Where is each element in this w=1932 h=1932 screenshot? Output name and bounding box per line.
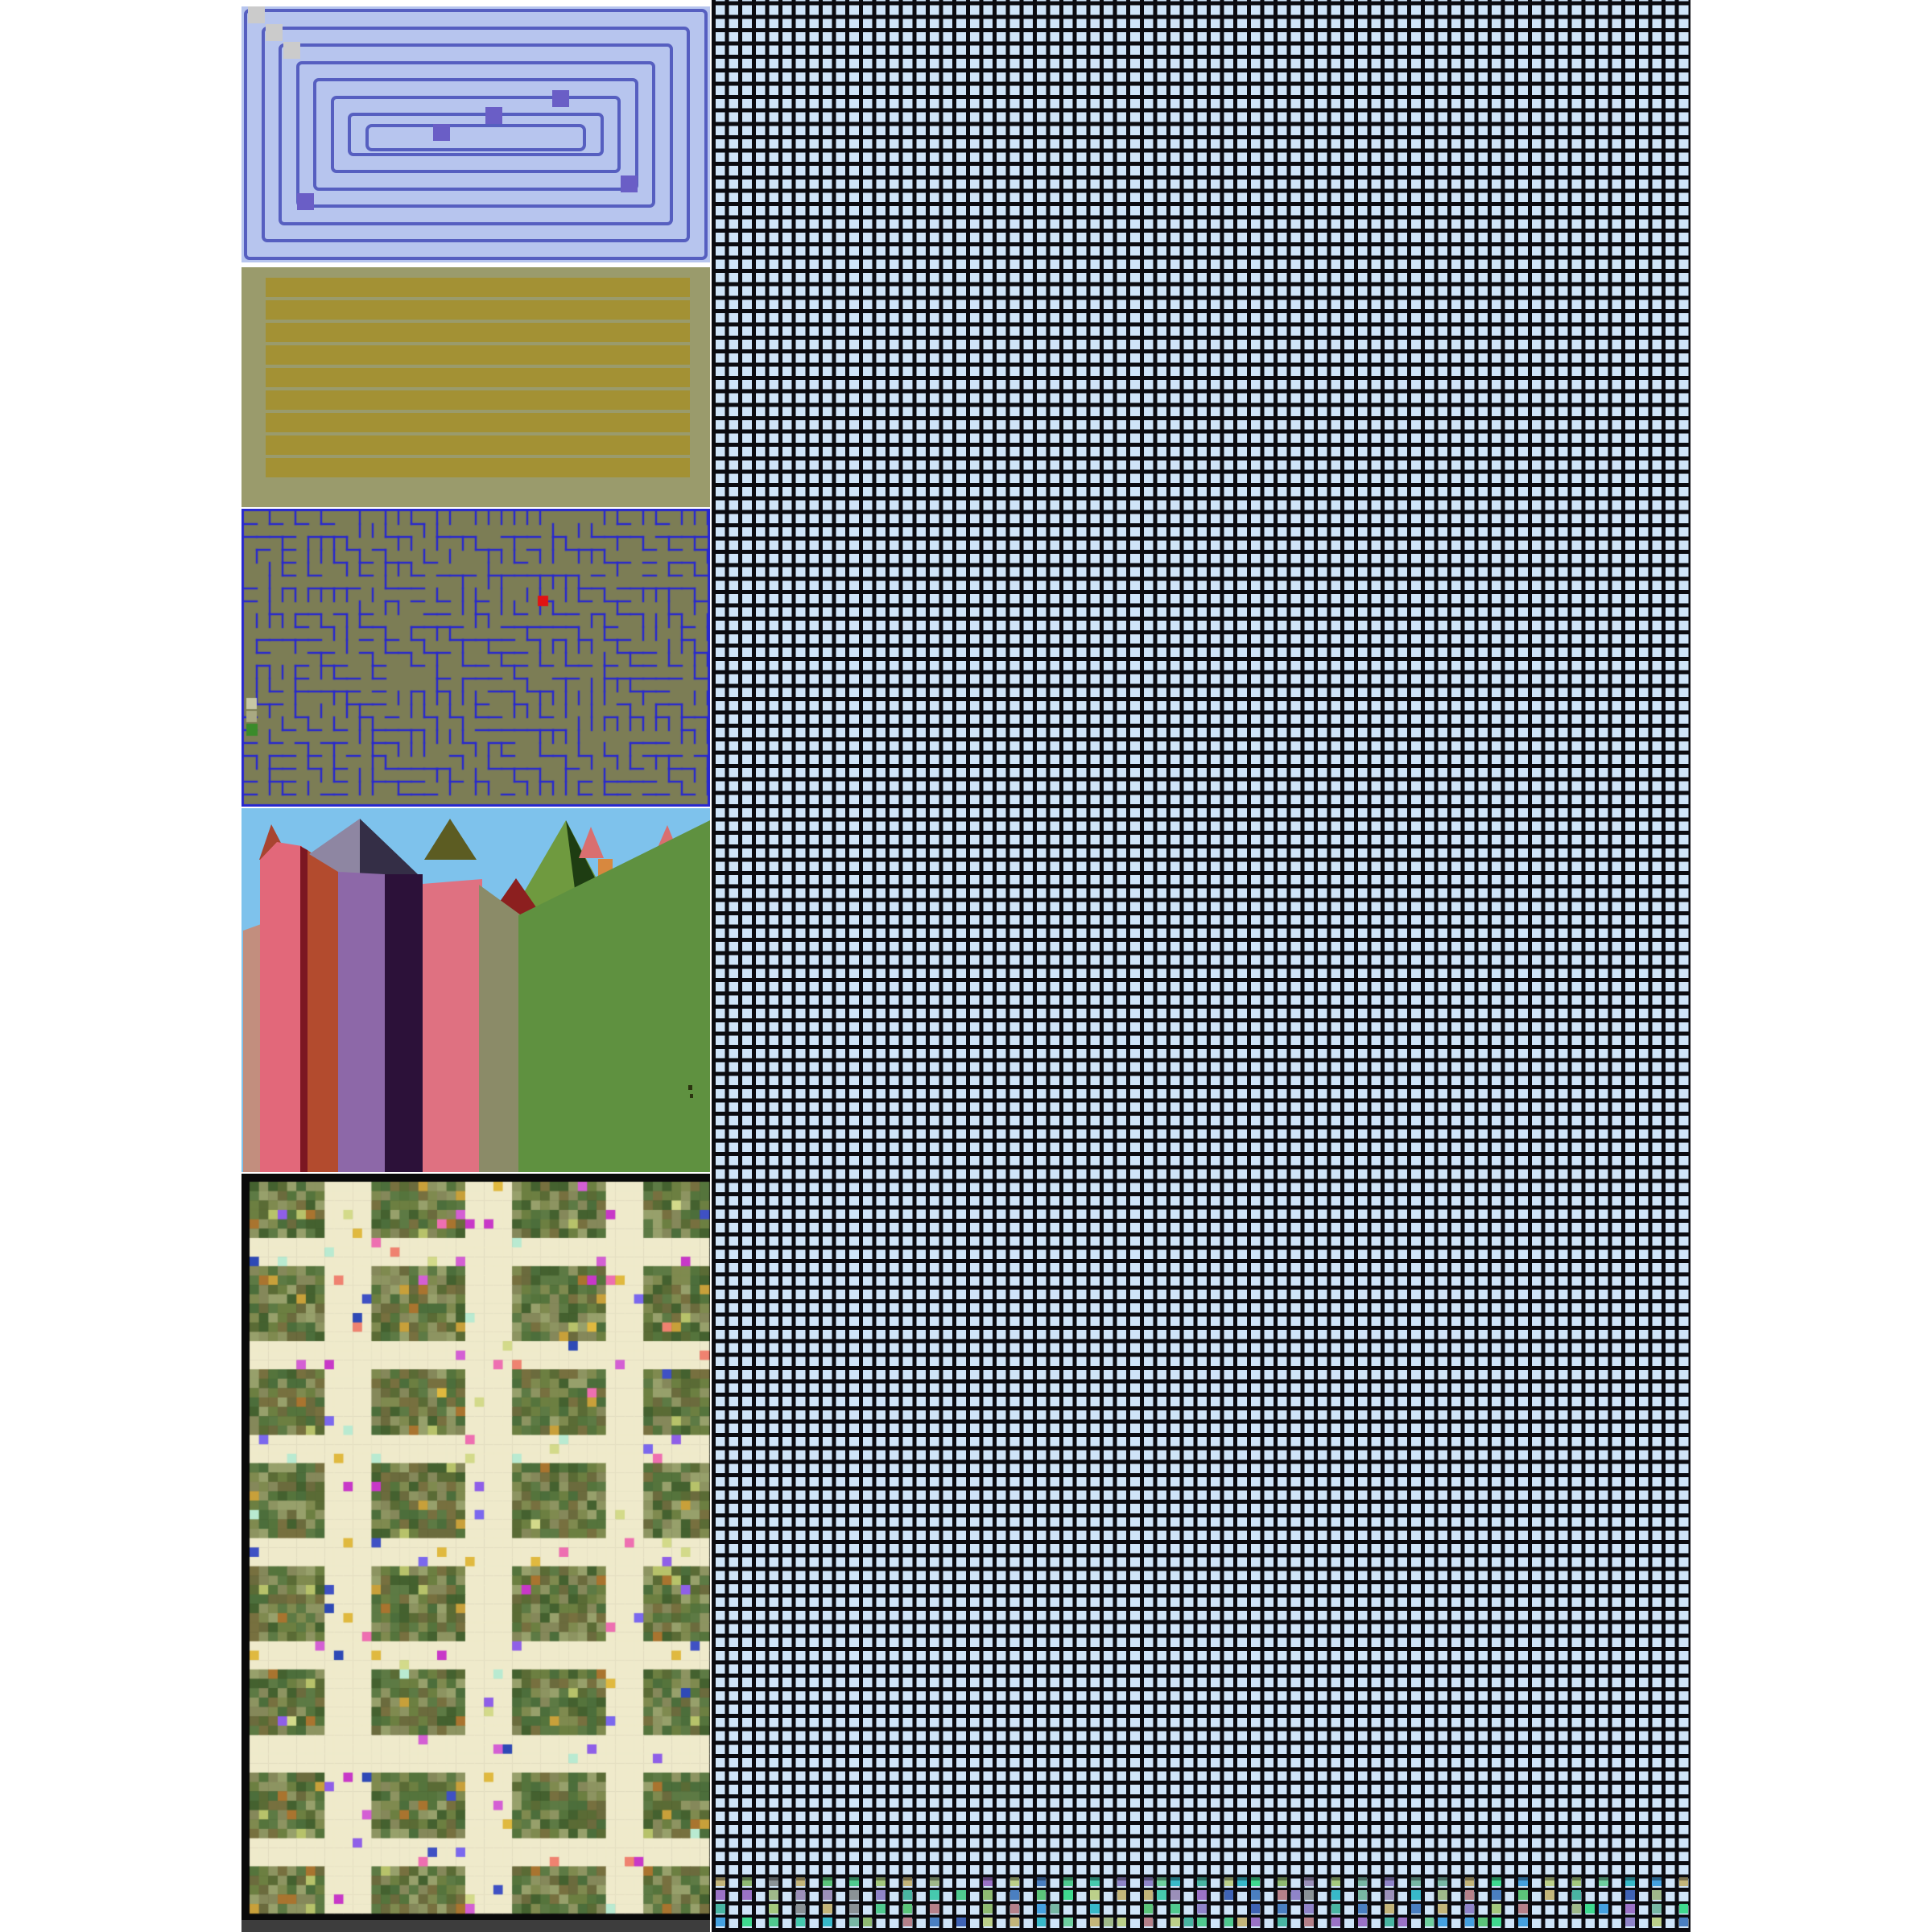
terrain-facet — [690, 1094, 693, 1098]
grid-colored-cell — [903, 1890, 913, 1900]
grid-colored-cell — [930, 1890, 939, 1900]
grid-colored-cell — [1625, 1904, 1635, 1913]
grid-colored-cell — [716, 1918, 725, 1927]
grid-colored-cell — [1465, 1890, 1475, 1900]
grid-colored-cell — [1251, 1877, 1261, 1887]
grid-colored-cell — [1385, 1890, 1394, 1900]
grid-colored-cell — [849, 1904, 859, 1913]
grid-colored-cell — [1184, 1918, 1194, 1927]
grid-colored-cell — [1385, 1877, 1394, 1887]
city-footer-bar — [242, 1920, 710, 1932]
terrain-facet — [308, 850, 340, 1172]
terrain-facet — [479, 885, 520, 1172]
grid-colored-cell — [930, 1877, 939, 1887]
city-map-panel — [242, 1174, 710, 1920]
grid-colored-cell — [1144, 1890, 1154, 1900]
grid-colored-cell — [1438, 1890, 1447, 1900]
spiral-gray-marker — [266, 24, 283, 41]
grid-colored-cell — [742, 1877, 752, 1887]
grid-colored-cell — [1358, 1904, 1368, 1913]
grid-colored-cell — [1237, 1877, 1247, 1887]
grid-colored-cell — [1438, 1877, 1447, 1887]
grid-colored-cell — [1144, 1904, 1154, 1913]
grid-colored-cell — [1652, 1877, 1662, 1887]
grid-colored-cell — [1251, 1904, 1261, 1913]
grid-colored-cell — [1278, 1918, 1287, 1927]
grid-colored-cell — [1090, 1918, 1100, 1927]
grid-colored-cell — [1278, 1904, 1287, 1913]
grid-colored-cell — [1411, 1904, 1421, 1913]
grid-colored-cell — [1385, 1918, 1394, 1927]
grid-colored-cell — [796, 1904, 806, 1913]
grid-colored-cell — [1331, 1904, 1341, 1913]
grid-colored-cell — [1411, 1877, 1421, 1887]
grid-colored-cell — [1438, 1904, 1447, 1913]
grid-colored-cell — [1304, 1877, 1314, 1887]
grid-colored-cell — [849, 1918, 859, 1927]
grid-colored-cell — [1599, 1877, 1608, 1887]
grid-colored-cell — [1224, 1890, 1234, 1900]
grid-colored-cell — [1197, 1877, 1207, 1887]
grid-colored-cell — [823, 1904, 832, 1913]
grid-colored-cell — [1425, 1918, 1435, 1927]
grid-colored-cell — [1438, 1918, 1447, 1927]
spiral-purple-marker — [552, 90, 569, 107]
grid-colored-cell — [903, 1904, 913, 1913]
grid-colored-cell — [1197, 1918, 1207, 1927]
grid-colored-cell — [1652, 1904, 1662, 1913]
spiral-center-slot — [365, 124, 586, 151]
spiral-purple-marker — [485, 107, 502, 124]
grid-colored-cell — [1090, 1877, 1100, 1887]
grid-colored-cell — [1304, 1890, 1314, 1900]
grid-colored-cell — [930, 1918, 939, 1927]
grid-colored-cell — [1278, 1877, 1287, 1887]
grid-colored-cell — [1358, 1918, 1368, 1927]
grid-colored-cell — [1224, 1918, 1234, 1927]
grid-colored-cell — [1051, 1904, 1060, 1913]
grid-colored-cell — [1518, 1918, 1528, 1927]
grid-colored-cell — [1492, 1918, 1501, 1927]
grid-colored-cell — [1518, 1890, 1528, 1900]
grid-colored-cell — [1157, 1877, 1166, 1887]
grid-colored-cell — [1492, 1904, 1501, 1913]
grid-colored-cell — [1224, 1877, 1234, 1887]
grid-colored-cell — [1599, 1904, 1608, 1913]
grid-colored-cell — [1251, 1890, 1261, 1900]
grid-colored-cell — [1010, 1904, 1020, 1913]
grid-colored-cell — [930, 1904, 939, 1913]
grid-colored-cell — [849, 1877, 859, 1887]
grid-colored-cell — [1465, 1904, 1475, 1913]
grid-colored-cell — [769, 1890, 778, 1900]
grid-colored-cell — [956, 1918, 966, 1927]
grid-colored-cell — [1251, 1918, 1261, 1927]
grid-colored-cell — [1144, 1877, 1154, 1887]
spiral-purple-marker — [433, 124, 450, 141]
grid-colored-cell — [1411, 1890, 1421, 1900]
grid-colored-cell — [1170, 1890, 1180, 1900]
grid-colored-cell — [1037, 1890, 1046, 1900]
grid-colored-cell — [1010, 1890, 1020, 1900]
spiral-purple-marker — [621, 175, 638, 192]
terrain-3d-panel — [242, 808, 710, 1172]
grid-colored-cell — [849, 1890, 859, 1900]
grid-colored-cell — [1037, 1918, 1046, 1927]
grid-colored-cell — [769, 1877, 778, 1887]
grid-colored-cell — [1037, 1904, 1046, 1913]
grid-colored-cell — [1063, 1877, 1073, 1887]
grid-colored-cell — [1492, 1877, 1501, 1887]
spiral-maze-panel — [242, 6, 710, 262]
grid-colored-cell — [863, 1918, 873, 1927]
grid-colored-cell — [1478, 1918, 1488, 1927]
grid-colored-cell — [1117, 1918, 1127, 1927]
spiral-gray-marker — [283, 42, 300, 59]
grid-colored-cell — [1144, 1918, 1154, 1927]
grid-colored-cell — [823, 1877, 832, 1887]
grid-colored-cell — [876, 1877, 885, 1887]
grid-colored-cell — [1304, 1904, 1314, 1913]
grid-colored-cell — [1170, 1904, 1180, 1913]
grid-colored-cell — [1572, 1904, 1582, 1913]
grid-colored-cell — [1679, 1904, 1689, 1913]
grid-colored-cell — [1492, 1890, 1501, 1900]
grid-colored-cell — [1518, 1904, 1528, 1913]
grid-colored-cell — [716, 1877, 725, 1887]
grid-colored-cell — [823, 1890, 832, 1900]
grid-colored-cell — [983, 1918, 993, 1927]
grid-colored-cell — [1385, 1904, 1394, 1913]
grid-colored-cell — [1652, 1918, 1662, 1927]
grid-colored-cell — [1585, 1904, 1595, 1913]
grid-colored-cell — [1625, 1890, 1635, 1900]
grid-colored-cell — [983, 1890, 993, 1900]
grid-colored-cell — [1278, 1890, 1287, 1900]
grid-colored-cell — [1063, 1918, 1073, 1927]
grid-colored-cell — [1652, 1890, 1662, 1900]
grid-colored-cell — [1170, 1877, 1180, 1887]
grid-colored-cell — [1331, 1918, 1341, 1927]
grid-colored-cell — [769, 1918, 778, 1927]
maze-panel — [242, 509, 710, 807]
grid-colored-cell — [1679, 1918, 1689, 1927]
terrain-facet — [338, 872, 385, 1172]
grid-colored-cell — [1117, 1890, 1127, 1900]
grid-colored-cell — [1358, 1877, 1368, 1887]
grid-colored-cell — [903, 1918, 913, 1927]
grid-colored-cell — [1063, 1890, 1073, 1900]
grid-colored-cell — [1090, 1904, 1100, 1913]
grid-colored-cell — [1545, 1877, 1554, 1887]
terrain-facet — [300, 846, 308, 1172]
grid-colored-cell — [1331, 1877, 1341, 1887]
terrain-facet — [688, 1085, 692, 1090]
grid-colored-cell — [1572, 1877, 1582, 1887]
grid-colored-cell — [1625, 1877, 1635, 1887]
grid-colored-cell — [1465, 1877, 1475, 1887]
grid-colored-cell — [1104, 1918, 1113, 1927]
grid-colored-cell — [1304, 1918, 1314, 1927]
grid-colored-cell — [742, 1918, 752, 1927]
grid-colored-cell — [983, 1904, 993, 1913]
grid-colored-cell — [1090, 1890, 1100, 1900]
grid-colored-cell — [1358, 1890, 1368, 1900]
grid-colored-cell — [769, 1904, 778, 1913]
grid-colored-cell — [1518, 1877, 1528, 1887]
stripe-rows — [266, 278, 690, 481]
spiral-purple-marker — [297, 193, 314, 210]
grid-colored-cell — [876, 1890, 885, 1900]
grid-colored-cell — [1465, 1918, 1475, 1927]
grid-colored-cell — [983, 1877, 993, 1887]
grid-colored-cell — [1170, 1918, 1180, 1927]
grid-colored-cell — [1237, 1918, 1247, 1927]
grid-colored-cell — [1197, 1904, 1207, 1913]
grid-colored-cell — [1398, 1918, 1408, 1927]
terrain-facet — [385, 874, 423, 1172]
grid-colored-cell — [1010, 1918, 1020, 1927]
grid-colored-cell — [876, 1904, 885, 1913]
grid-colored-cell — [823, 1918, 832, 1927]
grid-colored-cell — [1037, 1877, 1046, 1887]
terrain-facet — [260, 842, 302, 1172]
grid-colored-cell — [716, 1904, 725, 1913]
grid-colored-cell — [1117, 1877, 1127, 1887]
grid-colored-cell — [956, 1890, 966, 1900]
grid-colored-cell — [1679, 1877, 1689, 1887]
grid-colored-cell — [796, 1877, 806, 1887]
grid-colored-cell — [716, 1890, 725, 1900]
grid-colored-cell — [1197, 1890, 1207, 1900]
grid-colored-cell — [1291, 1890, 1301, 1900]
spiral-gray-marker — [248, 6, 265, 23]
grid-colored-cell — [796, 1918, 806, 1927]
grid-colored-cell — [1545, 1890, 1554, 1900]
grid-colored-cell — [1572, 1890, 1582, 1900]
grid-colored-cell — [1157, 1890, 1166, 1900]
grid-colored-cell — [1625, 1918, 1635, 1927]
grid-colored-cell — [1010, 1877, 1020, 1887]
grid-colored-cell — [903, 1877, 913, 1887]
terrain-facet — [423, 879, 482, 1172]
grid-colored-cell — [1331, 1890, 1341, 1900]
pixel-grid-panel — [712, 0, 1690, 1932]
striped-field-panel — [242, 267, 710, 507]
grid-colored-cell — [796, 1890, 806, 1900]
grid-colored-cell — [742, 1890, 752, 1900]
